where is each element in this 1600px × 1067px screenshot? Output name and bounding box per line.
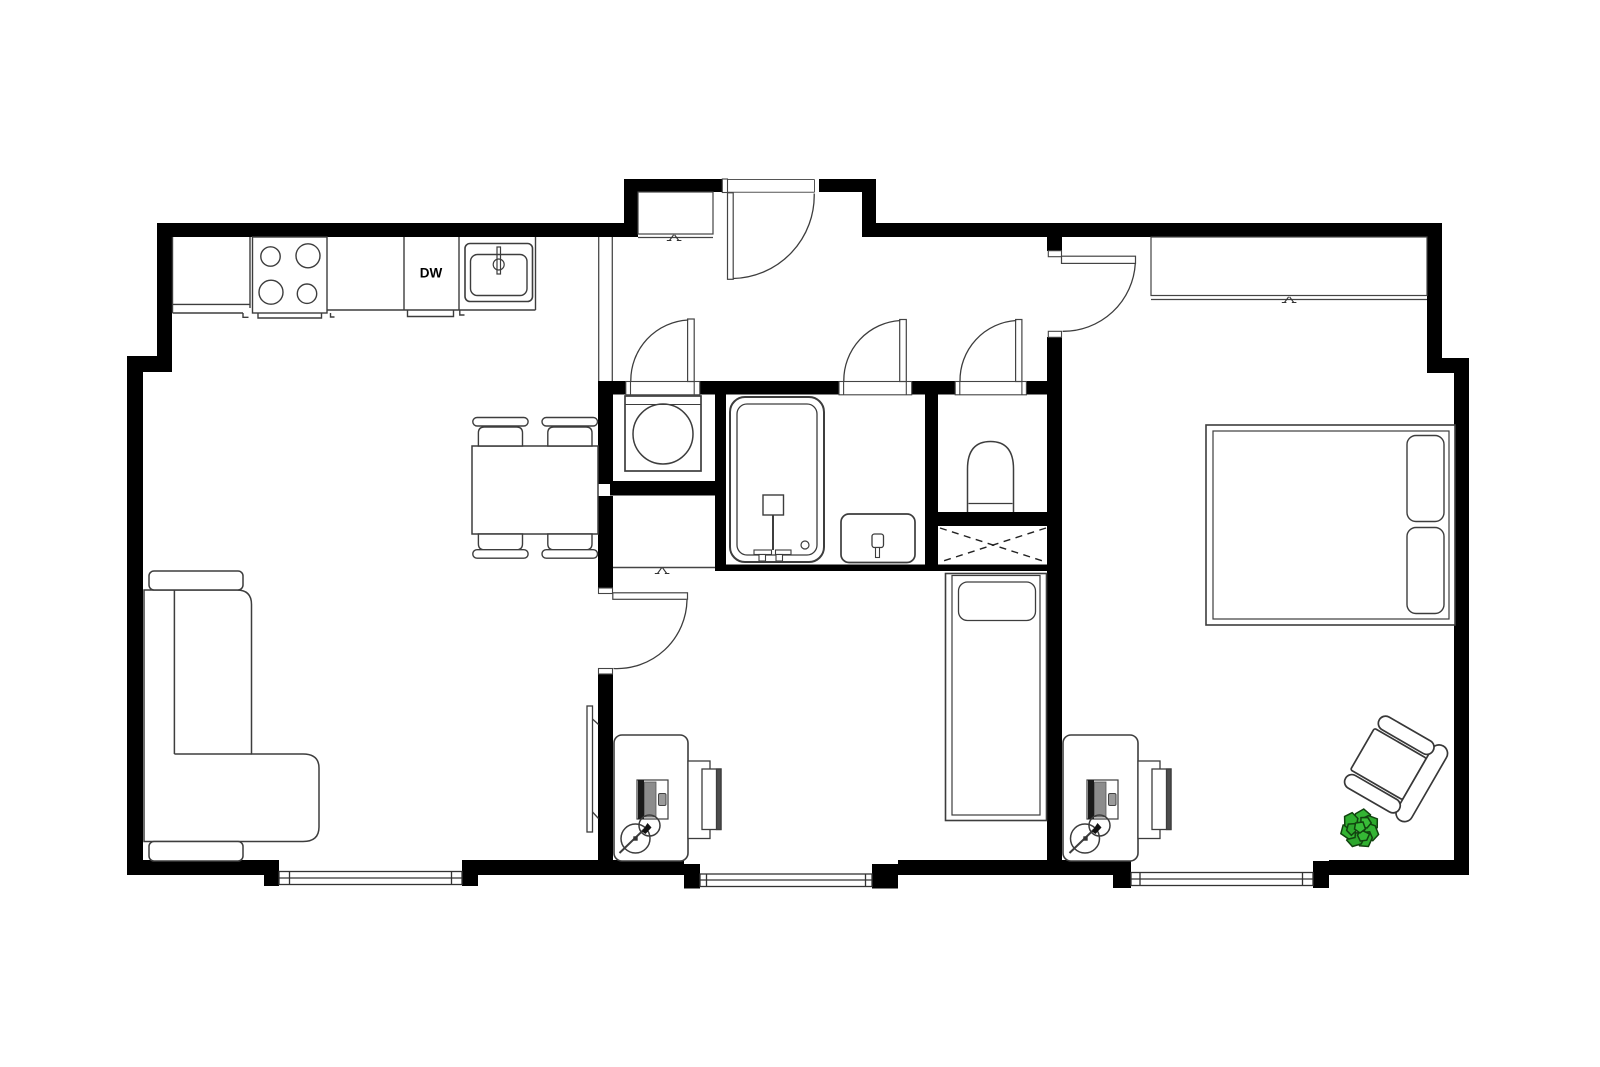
svg-text:DW: DW — [420, 266, 443, 281]
